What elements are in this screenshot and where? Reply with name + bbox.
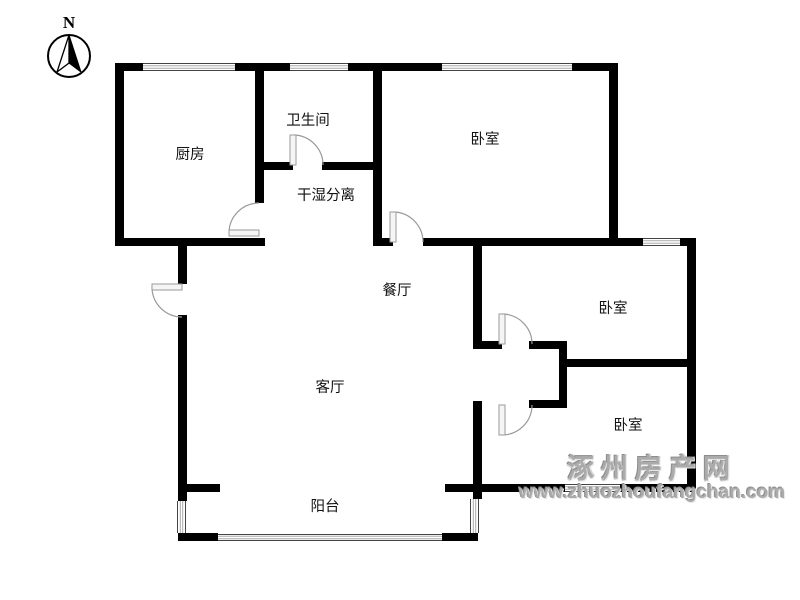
compass-needle-right	[69, 35, 81, 72]
window	[143, 63, 235, 71]
bathroom-door-arc	[293, 135, 323, 165]
wall	[178, 484, 220, 492]
room-label-wet-area: 干湿分离	[297, 187, 355, 204]
bedroom-1-door-arc	[393, 212, 423, 242]
bedroom-3-door-arc	[502, 405, 532, 435]
wall	[442, 533, 478, 541]
room-label-living: 客厅	[316, 379, 345, 396]
bedroom-2-door-leaf	[499, 314, 505, 344]
wall	[559, 359, 695, 367]
room-label-bathroom: 卫生间	[286, 112, 330, 129]
wall	[255, 162, 293, 170]
window	[177, 501, 186, 533]
north-label: N	[63, 13, 76, 32]
bedroom-3-door-leaf	[499, 405, 505, 435]
bedroom-2-door-arc	[502, 314, 532, 344]
wall	[473, 341, 502, 349]
entry-door-leaf	[152, 284, 182, 290]
room-label-kitchen: 厨房	[176, 146, 205, 163]
room-label-bedroom-1: 卧室	[471, 131, 500, 148]
room-label-dining: 餐厅	[383, 282, 412, 299]
window	[218, 534, 442, 541]
room-label-bedroom-3: 卧室	[614, 417, 643, 434]
wall	[255, 63, 264, 203]
wall	[481, 484, 565, 492]
wall	[609, 63, 618, 246]
wall	[373, 63, 382, 246]
wall	[620, 484, 695, 492]
wall	[115, 63, 124, 246]
bedroom-1-door-leaf	[390, 212, 396, 242]
floor-plan-page: 厨房卫生间干湿分离卧室餐厅客厅卧室卧室阳台 N 涿州房产网 www.zhuozh…	[0, 0, 800, 600]
floor-plan: 厨房卫生间干湿分离卧室餐厅客厅卧室卧室阳台	[0, 0, 800, 600]
bathroom-door-leaf	[290, 135, 296, 165]
wall	[473, 246, 482, 345]
window	[470, 499, 479, 533]
room-label-bedroom-2: 卧室	[599, 300, 628, 317]
kitchen-door-arc	[229, 203, 259, 233]
entry-door-arc	[152, 287, 182, 317]
wall	[559, 341, 567, 408]
window	[442, 63, 572, 71]
north-compass: N	[30, 4, 110, 96]
compass-needle-left	[57, 35, 69, 72]
wall	[115, 238, 265, 246]
window	[643, 238, 680, 246]
wall	[529, 400, 567, 408]
kitchen-door-leaf	[229, 230, 259, 236]
room-label-balcony: 阳台	[311, 498, 340, 515]
window	[290, 63, 348, 71]
wall	[178, 533, 218, 541]
window	[565, 484, 620, 492]
wall	[178, 315, 187, 501]
wall	[178, 246, 187, 284]
